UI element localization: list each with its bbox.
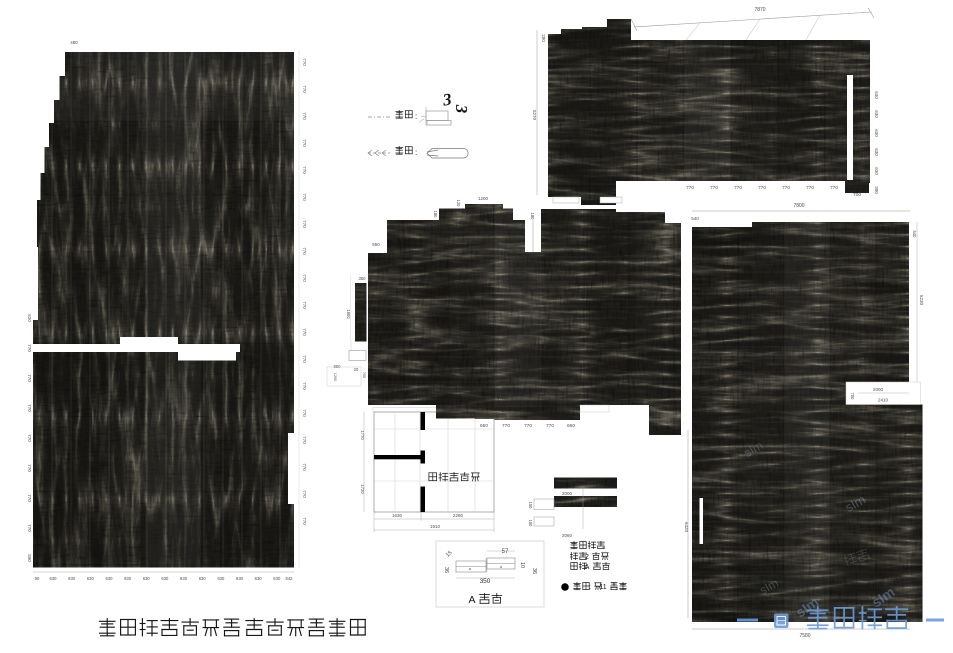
svg-text:770: 770 xyxy=(758,185,766,191)
svg-text:770: 770 xyxy=(302,112,307,120)
svg-text:770: 770 xyxy=(27,494,32,502)
svg-text:630: 630 xyxy=(874,129,879,137)
svg-text:150: 150 xyxy=(528,520,533,528)
svg-text:770: 770 xyxy=(302,355,307,363)
svg-text:6420: 6420 xyxy=(684,522,689,533)
svg-text:770: 770 xyxy=(302,490,307,498)
svg-text:590: 590 xyxy=(27,554,32,562)
svg-text:120: 120 xyxy=(456,200,461,208)
svg-text:770: 770 xyxy=(710,185,718,191)
svg-text:770: 770 xyxy=(27,374,32,382)
svg-text:1770: 1770 xyxy=(360,430,365,440)
svg-text:770: 770 xyxy=(302,139,307,147)
svg-text:90: 90 xyxy=(35,576,40,581)
svg-text:770: 770 xyxy=(27,404,32,412)
svg-text:150: 150 xyxy=(528,502,533,510)
svg-text:1900: 1900 xyxy=(346,309,351,319)
svg-text:11: 11 xyxy=(599,584,606,591)
svg-text:7800: 7800 xyxy=(793,203,804,209)
svg-text:350: 350 xyxy=(480,578,491,585)
svg-text:3: 3 xyxy=(441,89,454,109)
svg-text:180: 180 xyxy=(433,211,438,219)
svg-text:350: 350 xyxy=(359,276,367,281)
svg-text:630: 630 xyxy=(50,576,58,581)
svg-text:2000: 2000 xyxy=(873,387,884,392)
svg-text:770: 770 xyxy=(302,328,307,336)
svg-text:770: 770 xyxy=(502,423,510,429)
svg-text:630: 630 xyxy=(87,576,95,581)
svg-text:770: 770 xyxy=(734,185,742,191)
svg-text:770: 770 xyxy=(27,464,32,472)
svg-text:57: 57 xyxy=(502,549,509,555)
svg-text:3: 3 xyxy=(452,104,471,114)
svg-text:770: 770 xyxy=(782,185,790,191)
svg-text:36: 36 xyxy=(531,568,537,574)
svg-text:700: 700 xyxy=(362,372,366,378)
svg-text:770: 770 xyxy=(302,193,307,201)
svg-text:630: 630 xyxy=(161,576,169,581)
svg-text:1630: 1630 xyxy=(392,513,403,518)
svg-text:1910: 1910 xyxy=(430,524,441,529)
svg-text:770: 770 xyxy=(27,434,32,442)
svg-text:180: 180 xyxy=(530,213,535,221)
svg-text:630: 630 xyxy=(217,576,225,581)
svg-text:650: 650 xyxy=(480,423,488,429)
svg-text:700: 700 xyxy=(850,393,855,401)
svg-text:5270: 5270 xyxy=(532,110,537,121)
svg-text:630: 630 xyxy=(874,91,879,99)
svg-text:770: 770 xyxy=(830,185,838,191)
svg-text:480: 480 xyxy=(70,40,78,45)
svg-text:770: 770 xyxy=(546,423,554,429)
svg-text:620: 620 xyxy=(27,314,32,322)
svg-text:2000: 2000 xyxy=(562,491,573,496)
svg-text:630: 630 xyxy=(874,167,879,175)
svg-text:10: 10 xyxy=(519,562,525,568)
svg-text:630: 630 xyxy=(273,576,281,581)
svg-text:550: 550 xyxy=(372,242,380,247)
svg-text:770: 770 xyxy=(686,185,694,191)
svg-text:770: 770 xyxy=(302,247,307,255)
svg-text:630: 630 xyxy=(105,576,113,581)
svg-text:770: 770 xyxy=(302,382,307,390)
svg-text:1200: 1200 xyxy=(478,196,489,201)
svg-text:540: 540 xyxy=(912,231,917,239)
svg-text:15: 15 xyxy=(445,550,454,559)
svg-text:.: . xyxy=(602,543,604,550)
svg-text::: : xyxy=(415,148,417,157)
svg-text:770: 770 xyxy=(302,301,307,309)
svg-text:770: 770 xyxy=(302,85,307,93)
svg-text:2410: 2410 xyxy=(878,398,889,403)
svg-text:770: 770 xyxy=(302,409,307,417)
svg-text:630: 630 xyxy=(124,576,132,581)
svg-text:630: 630 xyxy=(255,576,263,581)
svg-text:770: 770 xyxy=(524,423,532,429)
svg-text:A: A xyxy=(585,564,590,571)
svg-text:1200: 1200 xyxy=(333,373,337,381)
svg-text:770: 770 xyxy=(806,185,814,191)
svg-text:7870: 7870 xyxy=(754,7,765,13)
svg-text:770: 770 xyxy=(27,344,32,352)
svg-text:1720: 1720 xyxy=(360,484,365,494)
svg-text:770: 770 xyxy=(27,524,32,532)
svg-text:770: 770 xyxy=(302,517,307,525)
svg-text:630: 630 xyxy=(236,576,244,581)
svg-text:A: A xyxy=(468,594,475,606)
svg-text:36: 36 xyxy=(443,567,449,573)
svg-text::: : xyxy=(415,112,417,121)
svg-text:20: 20 xyxy=(354,367,359,372)
svg-text:2060: 2060 xyxy=(562,533,573,538)
svg-text:770: 770 xyxy=(302,436,307,444)
svg-text:770: 770 xyxy=(302,274,307,282)
svg-text:770: 770 xyxy=(302,166,307,174)
svg-text:5230: 5230 xyxy=(919,295,924,306)
svg-text:280: 280 xyxy=(541,34,546,42)
svg-text:542: 542 xyxy=(286,576,294,581)
svg-text:630: 630 xyxy=(874,110,879,118)
svg-text:630: 630 xyxy=(874,148,879,156)
svg-text:300: 300 xyxy=(874,186,879,194)
svg-text:630: 630 xyxy=(199,576,207,581)
svg-text:630: 630 xyxy=(180,576,188,581)
svg-text:630: 630 xyxy=(68,576,76,581)
svg-text:2280: 2280 xyxy=(453,513,464,518)
svg-text:700: 700 xyxy=(853,192,861,198)
svg-text:2: 2 xyxy=(585,554,589,561)
svg-text:770: 770 xyxy=(302,463,307,471)
svg-text:540: 540 xyxy=(691,216,699,221)
svg-text:660: 660 xyxy=(567,423,575,429)
svg-text::: : xyxy=(589,584,591,591)
svg-text:850: 850 xyxy=(334,364,342,369)
svg-text:770: 770 xyxy=(302,58,307,66)
svg-text:630: 630 xyxy=(143,576,151,581)
svg-text:770: 770 xyxy=(302,220,307,228)
svg-text:7580: 7580 xyxy=(799,633,810,639)
